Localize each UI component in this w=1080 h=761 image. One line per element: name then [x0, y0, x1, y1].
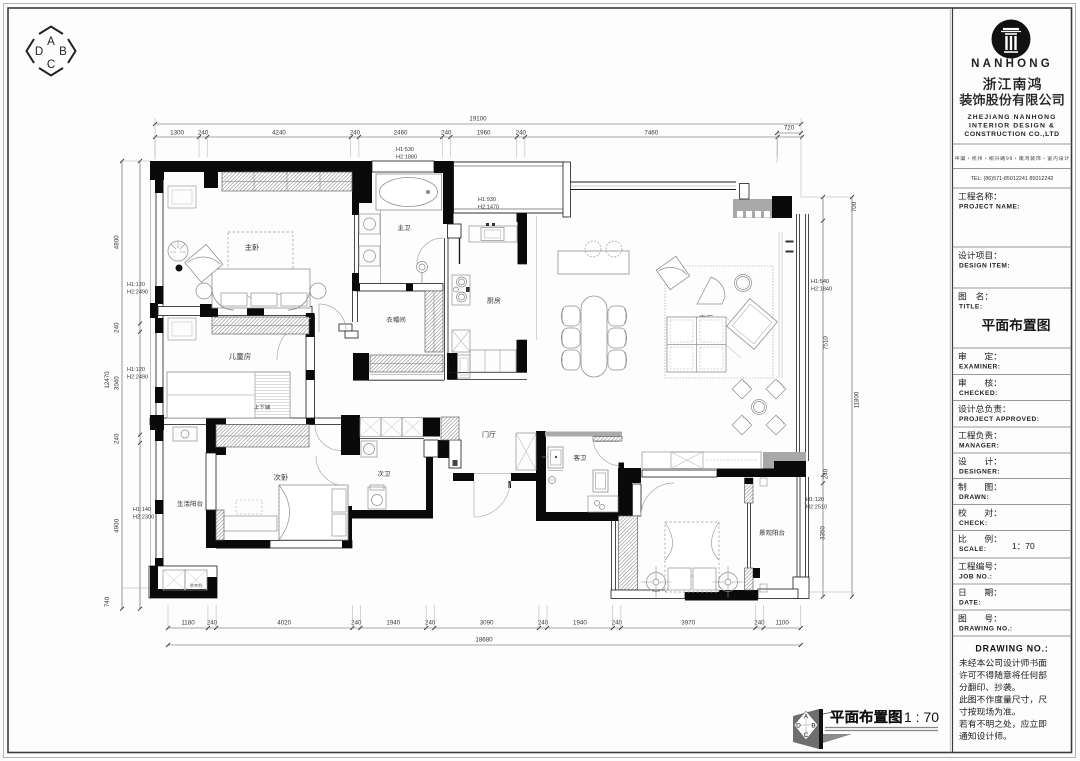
svg-text:TITLE:: TITLE:	[959, 304, 983, 311]
svg-text:ZHEJIANG NANHONG: ZHEJIANG NANHONG	[968, 114, 1057, 121]
svg-text:H2:2510: H2:2510	[806, 505, 827, 511]
svg-text:SCALE:: SCALE:	[959, 546, 987, 553]
svg-text:H1:120: H1:120	[806, 497, 824, 503]
svg-text:NANHONG: NANHONG	[971, 58, 1053, 70]
svg-text:DESIGN ITEM:: DESIGN ITEM:	[959, 263, 1010, 270]
svg-text:H2:2300: H2:2300	[133, 515, 154, 521]
svg-text:B: B	[59, 46, 67, 58]
svg-text:DRAWING NO.:: DRAWING NO.:	[959, 626, 1013, 633]
svg-text:3970: 3970	[681, 620, 695, 627]
svg-text:INTERIOR DESIGN &: INTERIOR DESIGN &	[969, 123, 1055, 130]
svg-text:240: 240	[441, 130, 452, 137]
svg-text:JOB NO.:: JOB NO.:	[959, 574, 992, 581]
svg-text:EXAMINER:: EXAMINER:	[959, 364, 1001, 371]
svg-text:7510: 7510	[823, 336, 830, 350]
svg-text:H1:930: H1:930	[478, 197, 496, 203]
svg-text:240: 240	[823, 468, 830, 479]
svg-text:240: 240	[516, 130, 527, 137]
svg-text:CONSTRUCTION CO.,LTD: CONSTRUCTION CO.,LTD	[964, 131, 1059, 138]
svg-text:D: D	[796, 723, 801, 730]
svg-text:1100: 1100	[775, 620, 789, 627]
svg-text:11800: 11800	[854, 391, 861, 408]
svg-text:DESIGNER:: DESIGNER:	[959, 469, 1000, 476]
svg-text:H1:120: H1:120	[127, 282, 145, 288]
svg-text:CHECKED:: CHECKED:	[959, 390, 998, 397]
svg-text:1940: 1940	[386, 620, 400, 627]
svg-text:D: D	[35, 46, 43, 58]
svg-text:2460: 2460	[394, 130, 408, 137]
svg-text:1 : 70: 1 : 70	[904, 709, 939, 725]
svg-text:CHECK:: CHECK:	[959, 520, 988, 527]
svg-text:4020: 4020	[277, 620, 291, 627]
svg-text:7460: 7460	[644, 130, 658, 137]
svg-text:A: A	[804, 714, 809, 721]
svg-text:4900: 4900	[114, 518, 121, 532]
svg-text:DRAWN:: DRAWN:	[959, 494, 989, 501]
svg-text:1940: 1940	[573, 620, 587, 627]
svg-text:4240: 4240	[272, 130, 286, 137]
svg-text:PROJECT APPROVED:: PROJECT APPROVED:	[959, 416, 1039, 423]
svg-text:1180: 1180	[181, 620, 195, 627]
svg-text:C: C	[804, 732, 809, 739]
svg-text:MANAGER:: MANAGER:	[959, 443, 999, 450]
svg-text:C: C	[47, 59, 55, 71]
svg-text:240: 240	[114, 433, 121, 444]
svg-text:TEL: (86)571-85012241 8501: TEL: (86)571-85012241 85012242	[971, 176, 1054, 182]
svg-text:A: A	[47, 36, 55, 48]
svg-text:H2:2490: H2:2490	[127, 290, 148, 296]
svg-text:B: B	[811, 723, 815, 730]
svg-text:3090: 3090	[480, 620, 494, 627]
svg-text:1：70: 1：70	[1012, 541, 1035, 551]
svg-text:740: 740	[104, 596, 111, 607]
svg-text:H1:540: H1:540	[811, 279, 829, 285]
svg-text:DRAWING NO.:: DRAWING NO.:	[975, 644, 1048, 654]
svg-text:720: 720	[784, 125, 795, 132]
svg-text:DATE:: DATE:	[959, 600, 981, 607]
svg-text:PROJECT NAME:: PROJECT NAME:	[959, 204, 1020, 211]
svg-text:H1:530: H1:530	[396, 147, 414, 153]
svg-text:4800: 4800	[114, 235, 121, 249]
svg-text:12470: 12470	[104, 371, 111, 389]
svg-text:19100: 19100	[469, 116, 487, 123]
svg-text:240: 240	[350, 130, 361, 137]
svg-text:H2:1470: H2:1470	[478, 205, 499, 211]
svg-text:H2:2490: H2:2490	[127, 375, 148, 381]
svg-text:3350: 3350	[820, 526, 827, 540]
svg-text:3040: 3040	[114, 376, 121, 390]
svg-text:240: 240	[198, 130, 209, 137]
svg-text:1300: 1300	[170, 130, 184, 137]
svg-text:H2:1840: H2:1840	[811, 287, 832, 293]
svg-text:H1:140: H1:140	[133, 507, 151, 513]
svg-text:H1:120: H1:120	[127, 367, 145, 373]
svg-text:18680: 18680	[475, 637, 493, 644]
svg-text:1960: 1960	[477, 130, 491, 137]
svg-text:H2:1880: H2:1880	[396, 155, 417, 161]
svg-text:240: 240	[114, 322, 121, 333]
